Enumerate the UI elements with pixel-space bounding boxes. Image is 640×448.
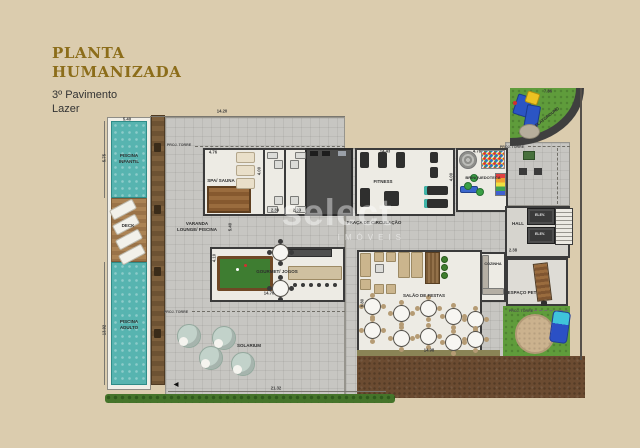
chair-icon [278,261,283,266]
plant-icon [441,264,448,271]
dimension-line-bottom [168,391,386,392]
dim-14-20: 14.20 [217,108,227,113]
chair-icon [451,351,456,356]
wc-fixture [274,160,283,169]
terrace-table [523,151,535,160]
sofa [360,279,371,290]
billiard-ball-icon [236,268,239,271]
gym-equipment-icon [430,152,438,163]
gym-equipment-icon [384,191,399,206]
plant-icon [441,272,448,279]
chaise-lounge [411,252,423,278]
chair-icon [399,347,404,352]
elevator-1 [527,208,555,225]
chair-icon [473,306,478,311]
party-table [420,300,437,317]
chair-icon [484,317,489,322]
party-table [364,298,381,315]
chair-icon [415,334,420,339]
beanbag-icon [476,188,484,196]
chair-icon [451,303,456,308]
chair-icon [437,306,442,311]
floor-plan: PISCINA INFANTILDECKPISCINA ADULTOVARAND… [0,0,640,448]
wc-fixture [295,206,306,213]
billiard-ball-icon [244,264,247,267]
chair-icon [426,345,431,350]
proj-torre-line-2 [192,311,345,312]
chair-icon [451,329,456,334]
massage-bed [236,178,255,189]
armchair [386,252,396,262]
gym-equipment-icon [424,199,448,208]
party-table [467,331,484,348]
planter-icon [154,267,161,276]
bar-counter [288,266,342,280]
hedge-strip [105,394,395,403]
chair-icon [399,300,404,305]
bar-stool [317,283,321,287]
chair-icon [370,339,375,344]
right-outer-wall [580,88,582,360]
terrace-chair [534,168,542,175]
party-table [393,305,410,322]
dimension-line-left2 [104,262,105,385]
chair-icon [278,239,283,244]
chair-icon [473,326,478,331]
armchair [386,284,396,294]
chair-icon [381,328,386,333]
side-table [375,264,384,273]
dimension-line-left1 [104,121,105,198]
chair-icon [410,311,415,316]
chair-icon [440,340,445,345]
wood-wall [151,115,165,385]
play-base [519,124,540,139]
stairs [555,208,573,245]
chair-icon [388,336,393,341]
chair-icon [484,337,489,342]
ball-pit [481,150,505,169]
chair-icon [359,304,364,309]
bar-stool [309,283,313,287]
proj-torre-line-3 [528,146,570,147]
daybed [177,324,201,348]
sofa [360,253,371,277]
pool-table [217,256,273,291]
chair-icon [388,311,393,316]
dimension-line-top [150,116,345,117]
proj-torre-line-5 [557,148,558,204]
chair-icon [370,293,375,298]
party-table [272,280,289,297]
wc-fixture [267,152,278,159]
massage-bed [236,165,255,176]
wc-fixture [290,160,299,169]
bar-stool [325,283,329,287]
vent-icon [310,151,318,156]
planter-icon [154,205,161,214]
planter-icon [154,143,161,152]
party-table [445,334,462,351]
chair-icon [437,334,442,339]
beanbag-icon [464,182,472,190]
elevator-2 [527,227,555,244]
chair-icon [473,348,478,353]
toy-shelf [495,173,506,196]
beanbag-icon [470,174,478,182]
wc-fixture [274,196,283,205]
vent-icon [322,151,330,156]
chair-icon [415,306,420,311]
kitchenette-counter [288,249,332,257]
plant-icon [441,256,448,263]
bar-stool [333,283,337,287]
piscina-adulto-pool [111,262,147,385]
chair-icon [267,286,272,291]
sauna-benches [207,186,251,213]
chair-icon [370,317,375,322]
wood-partition [425,252,440,284]
chair-icon [426,317,431,322]
play-rug-icon [459,151,477,169]
kitchen-counter [482,255,489,290]
chair-icon [381,304,386,309]
armchair [374,252,384,262]
panel-icon [338,151,346,156]
gym-equipment-icon [430,167,438,178]
chair-icon [359,328,364,333]
chair-icon [267,250,272,255]
daybed [199,346,223,370]
chair-icon [462,337,467,342]
chair-icon [399,325,404,330]
party-table [467,311,484,328]
chair-icon [462,317,467,322]
chair-icon [426,323,431,328]
party-table [445,308,462,325]
planta-humanizada-page: { "header": { "title_line1": "PLANTA", "… [0,0,640,448]
chair-icon [440,314,445,319]
daybed [231,352,255,376]
dirt-garden [357,356,585,398]
chair-icon [426,295,431,300]
armchair [374,284,384,294]
party-table [420,328,437,345]
gym-equipment-icon [378,152,387,168]
piscina-infantil-pool [111,121,147,198]
terrace-chair [519,168,527,175]
proj-torre-line-1 [195,146,345,147]
party-table [272,244,289,261]
play-ball-icon [513,101,517,105]
gym-equipment-icon [360,188,370,207]
gym-equipment-icon [360,152,369,168]
chaise-lounge [398,252,410,278]
technical-room [305,148,353,216]
gym-equipment-icon [424,186,448,195]
wc-fixture [295,152,306,159]
party-table [364,322,381,339]
bar-stool [301,283,305,287]
kitchen-counter [482,288,504,295]
chair-icon [410,336,415,341]
party-table [393,330,410,347]
proj-torre-line-4 [534,310,568,311]
chair-icon [278,275,283,280]
gym-equipment-icon [396,152,405,168]
chair-icon [289,250,294,255]
wc-fixture [290,196,299,205]
wc-fixture [267,206,278,213]
wc-divider-wall [284,150,286,214]
planter-icon [154,329,161,338]
bar-stool [293,283,297,287]
chair-icon [278,297,283,302]
massage-bed [236,152,255,163]
